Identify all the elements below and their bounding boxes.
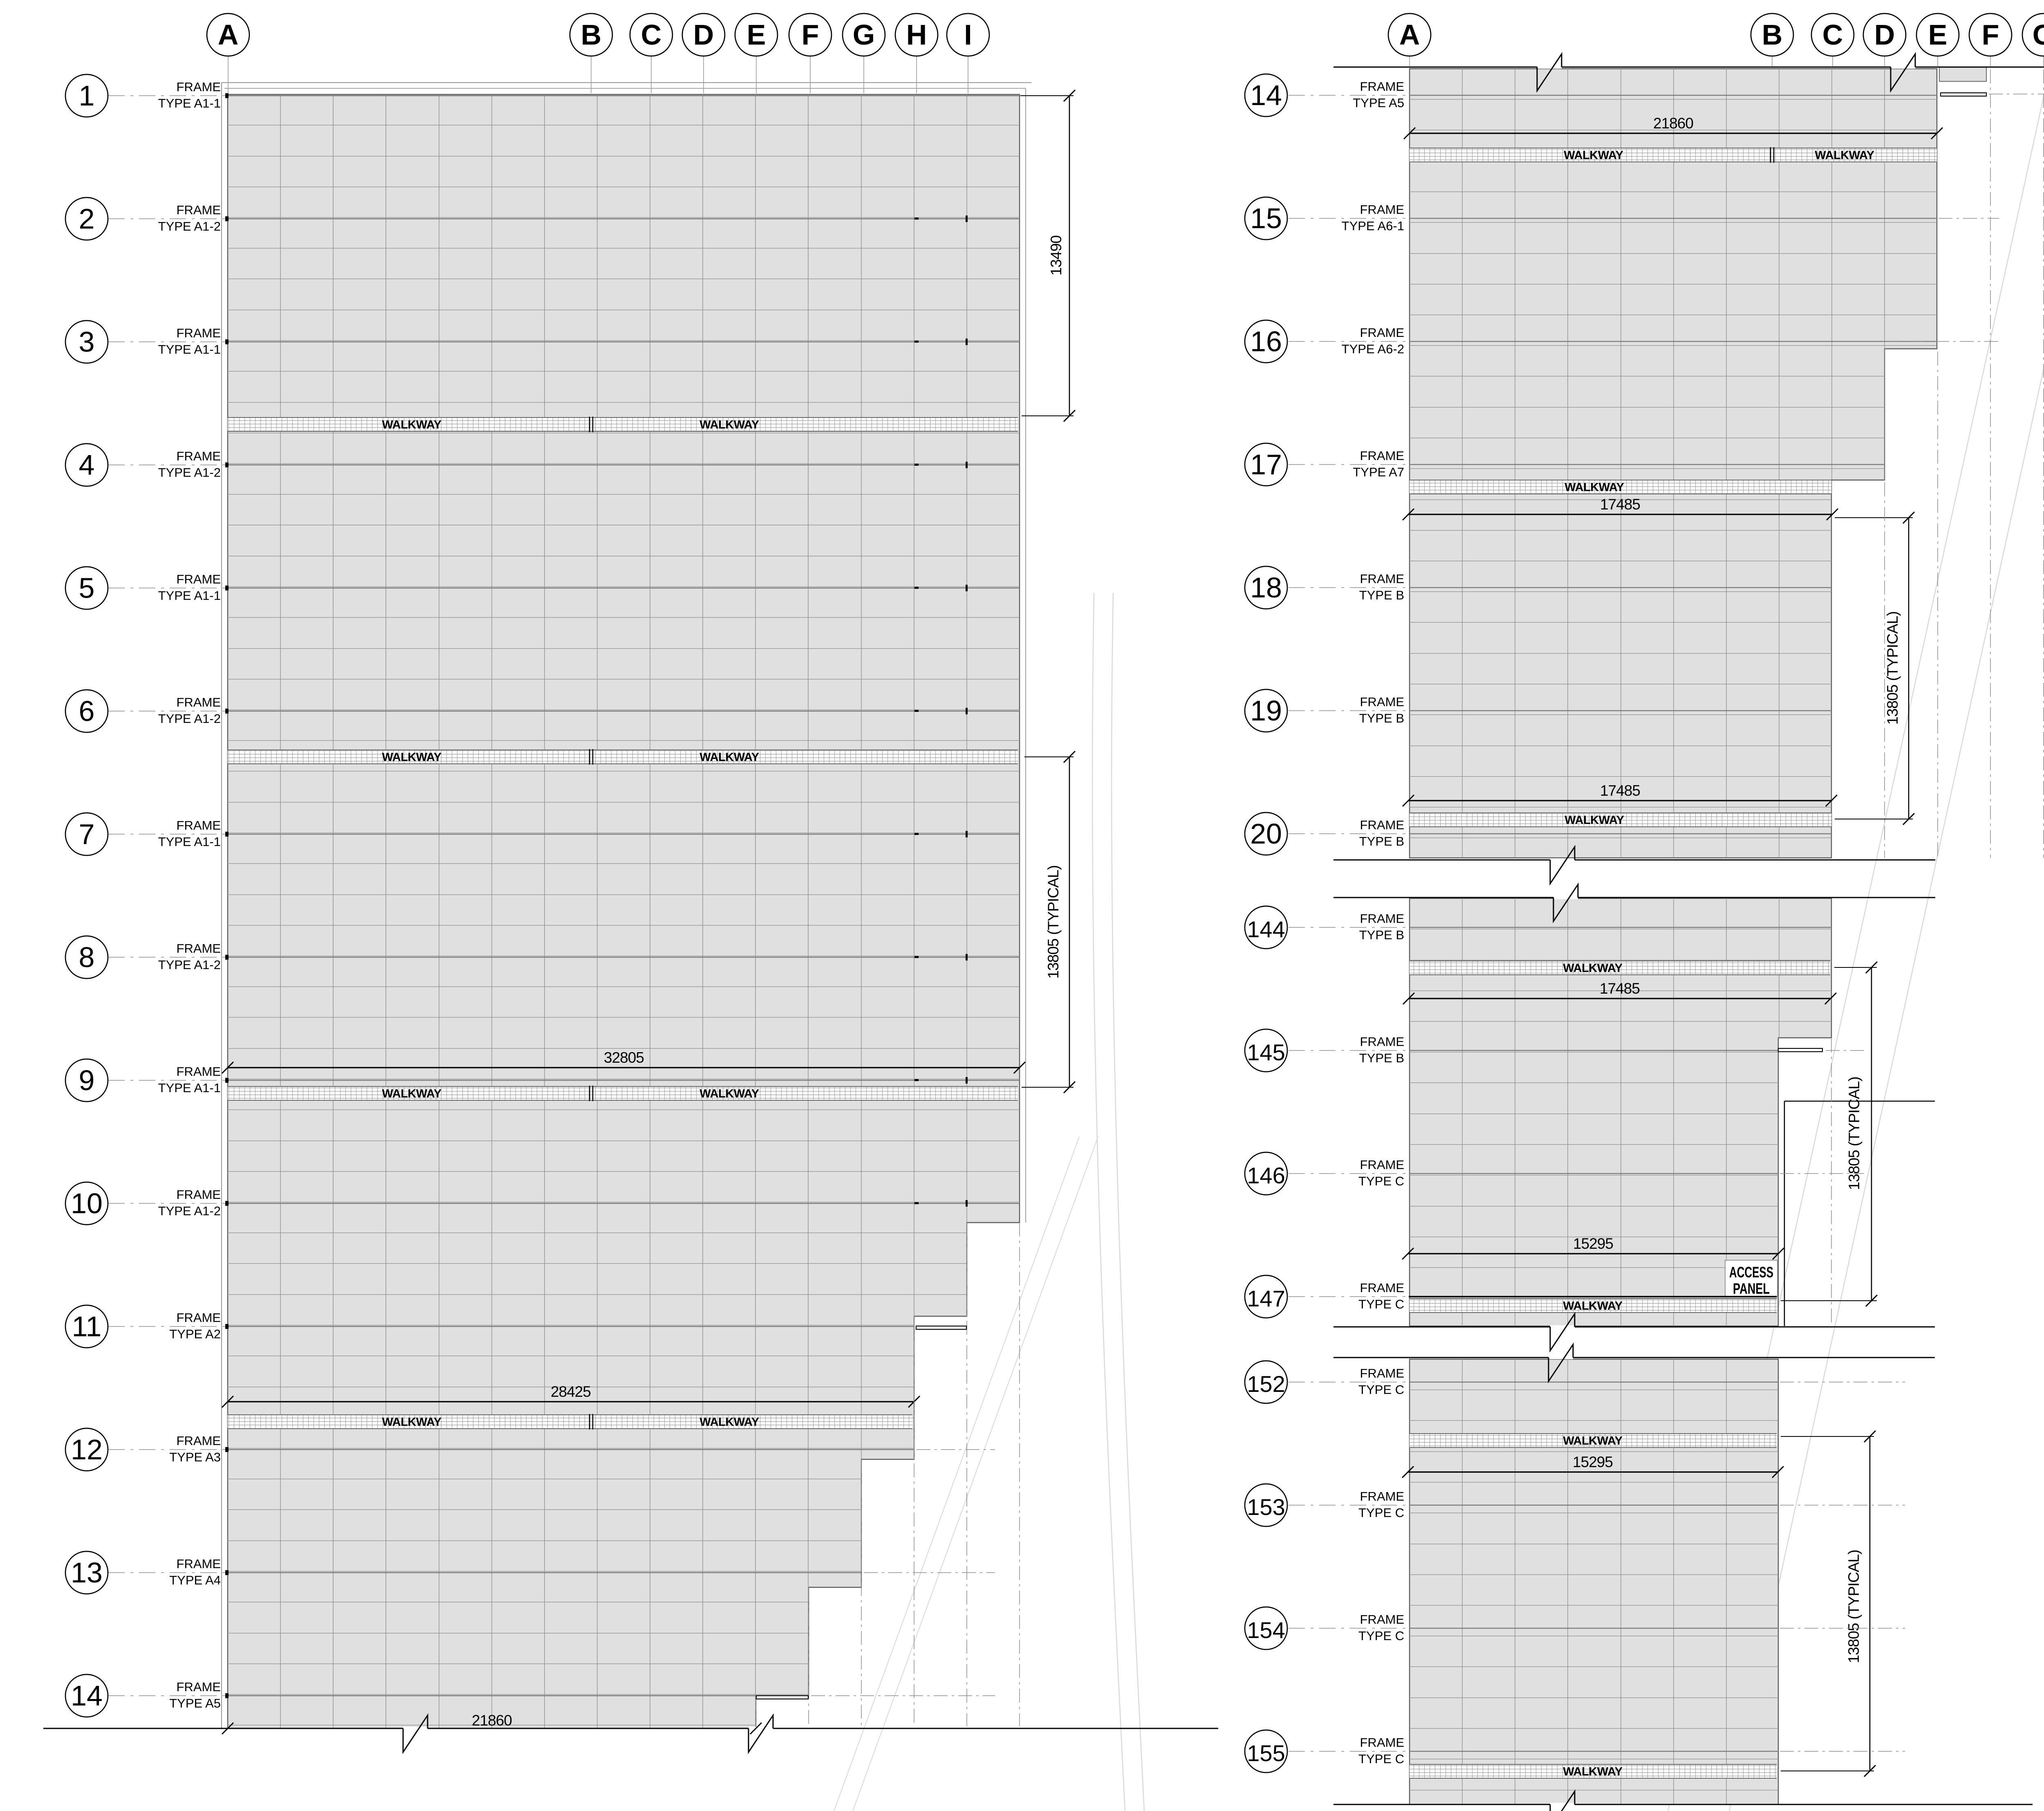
svg-text:FRAME: FRAME (1360, 1035, 1405, 1049)
svg-text:17485: 17485 (1600, 496, 1640, 513)
svg-text:G: G (853, 19, 875, 51)
svg-text:17: 17 (1250, 449, 1282, 480)
svg-text:TYPE A5: TYPE A5 (1353, 96, 1404, 110)
svg-text:17485: 17485 (1600, 782, 1640, 799)
svg-text:D: D (693, 19, 714, 51)
svg-text:TYPE C: TYPE C (1358, 1297, 1404, 1311)
svg-text:FRAME: FRAME (177, 1680, 221, 1694)
svg-text:TYPE A1-1: TYPE A1-1 (158, 342, 221, 357)
svg-text:5: 5 (79, 572, 95, 604)
svg-text:TYPE C: TYPE C (1358, 1629, 1404, 1643)
svg-text:2: 2 (79, 203, 95, 235)
svg-text:TYPE C: TYPE C (1358, 1382, 1404, 1397)
svg-text:F: F (802, 19, 819, 51)
svg-text:154: 154 (1247, 1617, 1285, 1643)
svg-text:TYPE A3: TYPE A3 (169, 1450, 221, 1464)
svg-text:TYPE A1-1: TYPE A1-1 (158, 588, 221, 603)
svg-text:TYPE A1-2: TYPE A1-2 (158, 465, 221, 480)
svg-text:TYPE C: TYPE C (1358, 1752, 1404, 1766)
svg-text:TYPE A4: TYPE A4 (169, 1573, 221, 1587)
svg-text:13805 (TYPICAL): 13805 (TYPICAL) (1045, 865, 1062, 978)
svg-text:WALKWAY: WALKWAY (1563, 1434, 1622, 1447)
svg-text:FRAME: FRAME (1360, 1735, 1405, 1750)
svg-text:146: 146 (1247, 1162, 1285, 1188)
svg-text:WALKWAY: WALKWAY (1815, 149, 1874, 162)
svg-text:TYPE A2: TYPE A2 (169, 1327, 221, 1341)
svg-text:FRAME: FRAME (177, 1434, 221, 1448)
svg-text:8: 8 (79, 941, 95, 973)
svg-text:FRAME: FRAME (177, 1311, 221, 1325)
svg-text:C: C (641, 19, 662, 51)
svg-text:TYPE A1-2: TYPE A1-2 (158, 958, 221, 972)
svg-text:WALKWAY: WALKWAY (382, 1087, 441, 1100)
svg-text:WALKWAY: WALKWAY (382, 418, 441, 431)
svg-text:WALKWAY: WALKWAY (699, 1087, 759, 1100)
svg-text:TYPE A1-1: TYPE A1-1 (158, 835, 221, 849)
svg-text:TYPE C: TYPE C (1358, 1174, 1404, 1188)
svg-text:TYPE B: TYPE B (1359, 1051, 1404, 1065)
svg-text:FRAME: FRAME (1360, 202, 1405, 217)
svg-text:WALKWAY: WALKWAY (1563, 1299, 1622, 1313)
svg-text:FRAME: FRAME (1360, 911, 1405, 926)
svg-text:H: H (906, 19, 927, 51)
svg-text:B: B (1762, 19, 1783, 51)
svg-text:TYPE B: TYPE B (1359, 834, 1404, 848)
svg-text:14: 14 (1250, 79, 1282, 111)
svg-text:13: 13 (71, 1557, 103, 1589)
svg-text:TYPE A6-2: TYPE A6-2 (1342, 342, 1404, 356)
svg-text:F: F (1982, 19, 1999, 51)
svg-text:FRAME: FRAME (1360, 1366, 1405, 1380)
svg-text:145: 145 (1247, 1039, 1285, 1065)
svg-text:21860: 21860 (472, 1712, 512, 1729)
svg-text:TYPE B: TYPE B (1359, 588, 1404, 602)
svg-text:15295: 15295 (1573, 1454, 1613, 1470)
svg-text:28425: 28425 (551, 1383, 591, 1400)
svg-text:WALKWAY: WALKWAY (382, 1416, 441, 1429)
svg-text:FRAME: FRAME (1360, 325, 1405, 340)
svg-text:I: I (964, 19, 972, 51)
svg-text:FRAME: FRAME (1360, 572, 1405, 586)
svg-text:TYPE A1-2: TYPE A1-2 (158, 711, 221, 726)
svg-text:TYPE A1-2: TYPE A1-2 (158, 219, 221, 233)
svg-text:G: G (2033, 19, 2044, 51)
svg-text:FRAME: FRAME (177, 941, 221, 956)
svg-text:FRAME: FRAME (1360, 1489, 1405, 1504)
svg-text:147: 147 (1247, 1286, 1285, 1311)
svg-text:A: A (218, 19, 239, 51)
svg-text:TYPE A1-1: TYPE A1-1 (158, 1081, 221, 1095)
svg-text:TYPE A1-1: TYPE A1-1 (158, 96, 221, 110)
svg-text:WALKWAY: WALKWAY (1564, 814, 1624, 827)
svg-text:TYPE A1-2: TYPE A1-2 (158, 1204, 221, 1218)
svg-text:FRAME: FRAME (177, 1187, 221, 1202)
svg-text:WALKWAY: WALKWAY (1564, 481, 1624, 494)
svg-text:TYPE A5: TYPE A5 (169, 1696, 221, 1710)
svg-text:WALKWAY: WALKWAY (1563, 962, 1622, 975)
svg-text:FRAME: FRAME (177, 695, 221, 709)
svg-text:10: 10 (71, 1187, 103, 1219)
svg-text:TYPE B: TYPE B (1359, 711, 1404, 725)
svg-text:B: B (581, 19, 602, 51)
svg-text:ACCESS: ACCESS (1729, 1264, 1773, 1281)
svg-text:PANEL: PANEL (1733, 1280, 1770, 1297)
svg-text:FRAME: FRAME (1360, 449, 1405, 463)
svg-text:153: 153 (1247, 1494, 1285, 1520)
svg-text:19: 19 (1250, 695, 1282, 727)
svg-text:FRAME: FRAME (177, 326, 221, 340)
svg-text:FRAME: FRAME (177, 203, 221, 217)
svg-text:14: 14 (71, 1680, 103, 1712)
svg-text:TYPE C: TYPE C (1358, 1506, 1404, 1520)
svg-text:WALKWAY: WALKWAY (1564, 149, 1623, 162)
svg-text:C: C (1822, 19, 1843, 51)
svg-text:FRAME: FRAME (1360, 1281, 1405, 1295)
svg-text:9: 9 (79, 1064, 95, 1096)
svg-text:FRAME: FRAME (1360, 1158, 1405, 1172)
svg-text:3: 3 (79, 326, 95, 358)
svg-text:11: 11 (72, 1311, 102, 1342)
svg-text:13490: 13490 (1048, 236, 1065, 276)
svg-text:FRAME: FRAME (177, 1557, 221, 1571)
svg-text:FRAME: FRAME (177, 572, 221, 586)
svg-text:13805 (TYPICAL): 13805 (TYPICAL) (1884, 611, 1901, 725)
svg-text:FRAME: FRAME (177, 80, 221, 94)
svg-text:TYPE A6-1: TYPE A6-1 (1342, 219, 1404, 233)
svg-text:TYPE A7: TYPE A7 (1353, 465, 1404, 479)
svg-text:WALKWAY: WALKWAY (699, 1416, 759, 1429)
svg-text:WALKWAY: WALKWAY (699, 751, 759, 764)
svg-text:A: A (1399, 19, 1420, 51)
svg-text:FRAME: FRAME (177, 449, 221, 463)
svg-text:FRAME: FRAME (1360, 818, 1405, 832)
svg-text:FRAME: FRAME (177, 1064, 221, 1079)
svg-text:6: 6 (79, 695, 95, 727)
svg-text:12: 12 (71, 1434, 103, 1465)
svg-text:D: D (1874, 19, 1895, 51)
svg-text:E: E (747, 19, 766, 51)
svg-text:15: 15 (1250, 202, 1282, 234)
svg-text:17485: 17485 (1600, 980, 1640, 997)
svg-text:13805 (TYPICAL): 13805 (TYPICAL) (1846, 1077, 1862, 1190)
svg-text:144: 144 (1247, 916, 1285, 942)
svg-text:152: 152 (1247, 1371, 1285, 1397)
svg-text:155: 155 (1247, 1740, 1285, 1766)
svg-text:21860: 21860 (1653, 115, 1693, 132)
svg-text:13805 (TYPICAL): 13805 (TYPICAL) (1845, 1550, 1862, 1663)
svg-text:20: 20 (1250, 818, 1282, 850)
svg-text:1: 1 (79, 80, 95, 112)
svg-text:WALKWAY: WALKWAY (1563, 1765, 1622, 1778)
svg-text:FRAME: FRAME (1360, 695, 1405, 709)
svg-text:16: 16 (1250, 325, 1282, 357)
svg-text:E: E (1928, 19, 1948, 51)
svg-text:15295: 15295 (1573, 1235, 1613, 1252)
svg-text:FRAME: FRAME (1360, 1612, 1405, 1627)
svg-text:WALKWAY: WALKWAY (699, 418, 759, 431)
svg-text:FRAME: FRAME (177, 818, 221, 833)
svg-text:FRAME: FRAME (1360, 79, 1405, 94)
svg-text:18: 18 (1250, 572, 1282, 604)
svg-text:WALKWAY: WALKWAY (382, 751, 441, 764)
svg-text:TYPE B: TYPE B (1359, 928, 1404, 942)
svg-text:32805: 32805 (604, 1049, 644, 1066)
svg-text:4: 4 (79, 449, 95, 481)
svg-text:7: 7 (79, 818, 95, 850)
